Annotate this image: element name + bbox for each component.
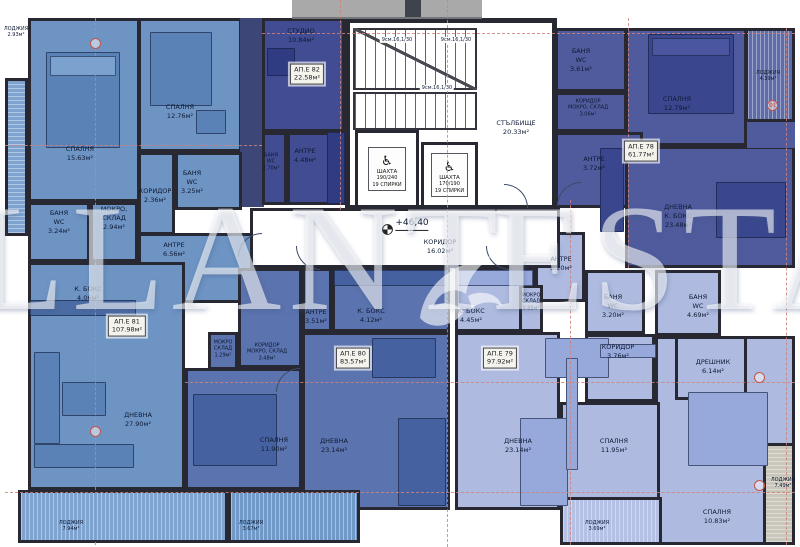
label-corridor-376: КОРИДОР3.76м² [602, 343, 635, 361]
apartment-chip-ap78: АП.Е 7861.77м² [624, 141, 658, 162]
label-hall-372: АНТРЕ3.72м² [583, 155, 605, 173]
label-stair-flight3: 9см.16,1/30 [420, 85, 454, 91]
axis-line [5, 492, 795, 493]
loggia-369 [560, 497, 662, 545]
top-wall-segment [405, 0, 421, 19]
floor-plan: ♿ ШАХТА 190/240 19 СПИРКИ ♿ ШАХТА 170/19… [0, 0, 800, 547]
label-bath-270: БАНЯ WC2.70м² [263, 153, 280, 172]
label-stair-flight1: 9см.16,1/30 [380, 37, 414, 43]
label-living-2314a: ДНЕВНА23.14м² [320, 437, 348, 455]
label-living-2790: ДНЕВНА27.90м² [124, 411, 152, 429]
room-living-2348-ext [747, 120, 795, 148]
label-bedroom-1190: СПАЛНЯ11.90м² [260, 436, 288, 454]
label-stair-flight2: 9см.16,1/30 [439, 37, 473, 43]
bed-icon [688, 392, 768, 466]
desk-icon [196, 110, 226, 134]
pillow-icon [652, 38, 730, 56]
axis-line [262, 33, 795, 34]
label-loggia-794: ЛОДЖИЯ7.94м² [59, 520, 83, 533]
axis-marker-icon [90, 426, 101, 437]
sofa-icon [34, 444, 134, 468]
label-loggia-369: ЛОДЖИЯ3.69м² [585, 520, 609, 533]
dining-table-icon [372, 338, 436, 378]
watermark-plume-icon [414, 246, 506, 338]
label-studio: СТУДИО10.84м² [287, 27, 315, 45]
label-stairwell: СТЪЛБИЩЕ20.33м² [496, 119, 535, 137]
label-storage-129: МОКРО СКЛАД1.29м² [214, 340, 233, 359]
label-corridor-348: КОРИДОР МОКРО, СКЛАД3.48м² [247, 343, 287, 362]
label-closet-614: ДРЕШНИК6.14м² [696, 358, 730, 376]
bed-icon [150, 32, 212, 106]
wheelchair-icon: ♿ [444, 160, 456, 175]
axis-line [5, 145, 262, 146]
label-bedroom-1195: СПАЛНЯ11.95м² [600, 437, 628, 455]
label-loggia-439: ЛОДЖИЯ4.39м² [756, 70, 780, 83]
label-bath-361: БАНЯ WC3.61м² [570, 47, 592, 73]
label-bedroom-1279: СПАЛНЯ12.79м² [663, 95, 691, 113]
label-loggia-293: ЛОДЖИЯ2.93м² [4, 26, 28, 39]
sofa-icon [34, 352, 60, 444]
label-bedroom-1563: СПАЛНЯ15.63м² [66, 145, 94, 163]
loggia-367 [228, 490, 360, 543]
pillow-icon [50, 56, 116, 76]
apartment-chip-ap79: АП.Е 7997.92м² [483, 348, 517, 369]
label-loggia-749: ЛОДЖИЯ7.49м² [771, 477, 795, 490]
desk-icon [566, 358, 578, 470]
bed-icon [193, 394, 277, 466]
axis-line [185, 382, 795, 383]
watermark-text-right: ESTA [492, 182, 800, 334]
reference-marker-f1: Ф1 [767, 100, 778, 111]
label-loggia-367: ЛОДЖИЯ3.67м² [239, 520, 263, 533]
table-icon [62, 382, 106, 416]
wheelchair-icon: ♿ [381, 154, 393, 169]
stair-flight-lower [353, 92, 477, 130]
label-bedroom-1083: СПАЛНЯ10.83м² [703, 508, 731, 526]
label-corridor-306: КОРИДОР МОКРО, СКЛАД3.06м² [568, 99, 608, 118]
axis-marker-icon [754, 480, 765, 491]
axis-marker-icon [754, 372, 765, 383]
label-hall-448: АНТРЕ4.48м² [294, 147, 316, 165]
label-bedroom-1276: СПАЛНЯ12.76м² [166, 103, 194, 121]
top-wall-band [292, 0, 482, 19]
axis-marker-icon [90, 38, 101, 49]
apartment-chip-ap80: АП.Е 8083.57м² [336, 348, 370, 369]
loggia-794 [18, 490, 228, 543]
apartment-chip-ap82: АП.Е 8222.58м² [290, 64, 324, 85]
label-living-2314b: ДНЕВНА23.14м² [504, 437, 532, 455]
